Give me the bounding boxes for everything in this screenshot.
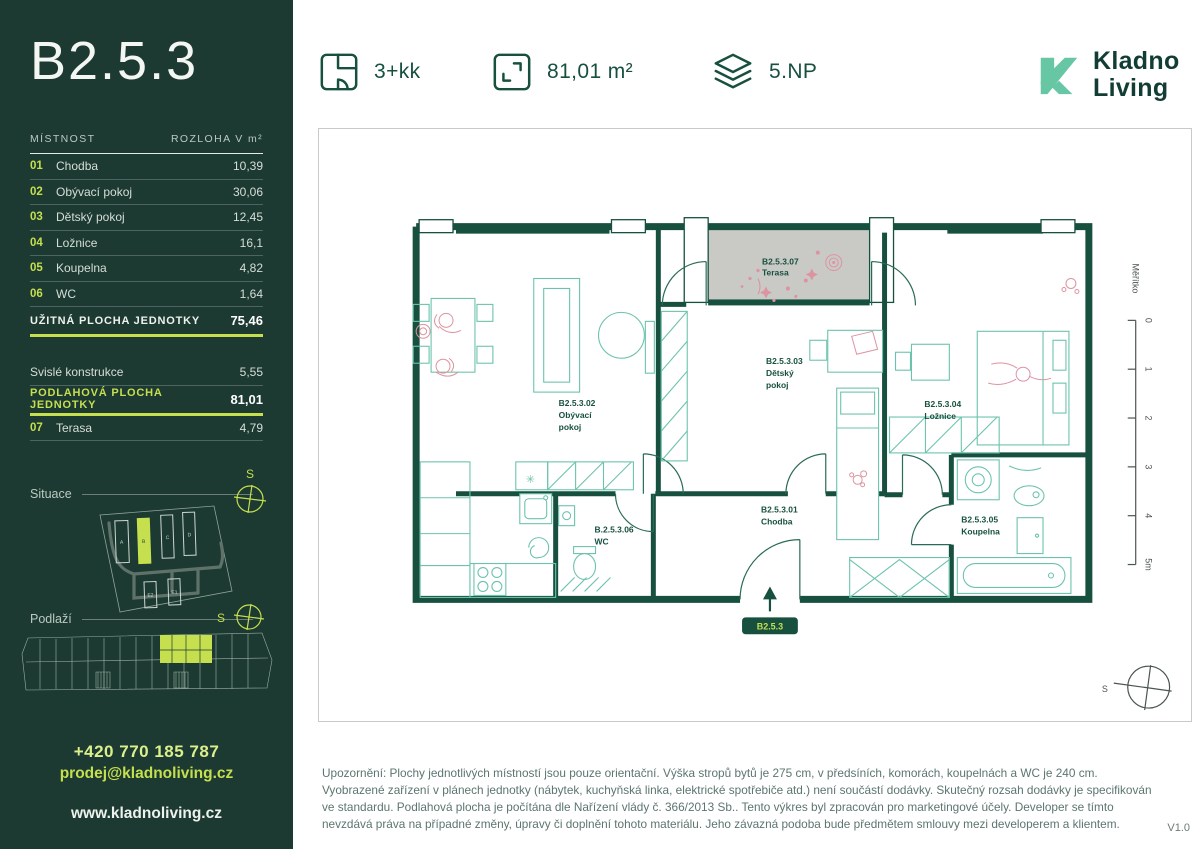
svg-text:Dětský: Dětský	[766, 368, 794, 378]
floors-icon	[711, 51, 755, 93]
wc-fixtures	[559, 506, 611, 592]
svg-text:✳: ✳	[526, 474, 535, 486]
site-plan-diagram: A B C D E2 E1	[80, 503, 260, 615]
entrance-marker: B2.5.3	[742, 586, 798, 634]
unit-title: B2.5.3	[30, 30, 198, 92]
table-row: 06 WC 1,64	[30, 282, 263, 308]
terrace-name: Terasa	[56, 421, 240, 435]
svg-text:Ložnice: Ložnice	[924, 411, 956, 421]
hallway-storage	[850, 558, 950, 598]
svg-text:WC: WC	[595, 537, 609, 547]
layout-icon	[318, 51, 360, 93]
walls-value: 5,55	[240, 365, 263, 379]
room-area: 1,64	[240, 287, 263, 301]
room-area: 30,06	[233, 185, 263, 199]
room-table: MÍSTNOST ROZLOHA V m² 01 Chodba 10,39 02…	[30, 133, 263, 441]
floor-plan-panel: ✳	[318, 128, 1192, 722]
usable-area-value: 75,46	[230, 313, 263, 328]
terrace-window	[708, 299, 869, 305]
plan-compass-icon: S	[1102, 665, 1172, 710]
usable-area-label: UŽITNÁ PLOCHA JEDNOTKY	[30, 315, 230, 327]
svg-text:4: 4	[1144, 513, 1154, 518]
room-area: 12,45	[233, 210, 263, 224]
room-area: 10,39	[233, 159, 263, 173]
room-number: 04	[30, 237, 56, 249]
svg-text:Terasa: Terasa	[762, 268, 789, 278]
floor-overview-diagram	[16, 630, 278, 698]
divider	[82, 494, 253, 495]
terrace-num: 07	[30, 422, 56, 434]
window	[456, 228, 609, 234]
table-row: 04 Ložnice 16,1	[30, 231, 263, 257]
room-name: Obývací pokoj	[56, 185, 233, 199]
flat-card-page: B2.5.3 MÍSTNOST ROZLOHA V m² 01 Chodba 1…	[0, 0, 1200, 849]
contact-block: +420 770 185 787 prodej@kladnoliving.cz …	[0, 742, 293, 823]
floor-plan-drawing: ✳	[319, 129, 1191, 721]
door-arcs	[615, 262, 951, 600]
table-row: 05 Koupelna 4,82	[30, 256, 263, 282]
kladno-living-logo-icon	[1035, 52, 1081, 98]
area-value: 81,01 m²	[547, 60, 633, 84]
room-area: 16,1	[240, 236, 263, 250]
svg-text:E1: E1	[171, 590, 178, 596]
svg-text:B.2.5.3.06: B.2.5.3.06	[595, 525, 634, 535]
floor-area-row: PODLAHOVÁ PLOCHA JEDNOTKY 81,01	[30, 386, 263, 416]
version-label: V1.0	[1167, 822, 1190, 834]
svg-text:S: S	[1102, 684, 1108, 694]
svg-text:1: 1	[1144, 367, 1154, 372]
svg-text:B2.5.3.02: B2.5.3.02	[559, 398, 596, 408]
floor-area-value: 81,01	[230, 392, 263, 407]
svg-text:D: D	[187, 532, 191, 538]
svg-text:S: S	[217, 611, 225, 625]
room-area: 4,82	[240, 261, 263, 275]
highlighted-unit	[160, 635, 212, 663]
room-number: 02	[30, 186, 56, 198]
terrace-value: 4,79	[240, 421, 263, 435]
svg-text:3: 3	[1144, 464, 1154, 469]
room-number: 03	[30, 211, 56, 223]
svg-text:pokoj: pokoj	[559, 422, 582, 432]
terrace-row: 07 Terasa 4,79	[30, 416, 263, 442]
svg-text:S: S	[246, 467, 254, 481]
svg-text:pokoj: pokoj	[766, 380, 789, 390]
svg-text:C: C	[166, 535, 170, 541]
svg-text:0: 0	[1144, 318, 1154, 323]
svg-text:5m: 5m	[1144, 558, 1154, 570]
website-link[interactable]: www.kladnoliving.cz	[0, 805, 293, 823]
main-area: 3+kk 81,01 m² 5.NP	[293, 0, 1200, 849]
col-area-header: ROZLOHA V m²	[171, 133, 263, 145]
floor-value: 5.NP	[769, 60, 817, 84]
svg-text:B2.5.3.04: B2.5.3.04	[924, 399, 961, 409]
room-number: 06	[30, 288, 56, 300]
bedroom-furniture	[890, 278, 1079, 452]
table-header: MÍSTNOST ROZLOHA V m²	[30, 133, 263, 154]
svg-text:B2.5.3: B2.5.3	[757, 621, 783, 631]
svg-text:Koupelna: Koupelna	[961, 527, 1000, 537]
email-link[interactable]: prodej@kladnoliving.cz	[0, 765, 293, 783]
disposition-value: 3+kk	[374, 60, 421, 84]
area-icon	[491, 51, 533, 93]
svg-text:B2.5.3.05: B2.5.3.05	[961, 515, 998, 525]
spec-area: 81,01 m²	[491, 50, 633, 94]
room-name: Dětský pokoj	[56, 210, 233, 224]
room-rows: 01 Chodba 10,39 02 Obývací pokoj 30,06 0…	[30, 154, 263, 307]
svg-text:Měřítko: Měřítko	[1131, 264, 1141, 294]
svg-text:B2.5.3.01: B2.5.3.01	[761, 505, 798, 515]
svg-text:Chodba: Chodba	[761, 517, 793, 527]
svg-text:B2.5.3.07: B2.5.3.07	[762, 257, 799, 267]
svg-text:E2: E2	[147, 593, 154, 599]
walls-row: Svislé konstrukce 5,55	[30, 360, 263, 386]
spec-floor: 5.NP	[711, 50, 817, 94]
room-number: 05	[30, 262, 56, 274]
svg-text:Obývací: Obývací	[559, 410, 593, 420]
svg-text:A: A	[120, 540, 124, 546]
window	[947, 228, 1043, 234]
walls-label: Svislé konstrukce	[30, 365, 240, 379]
room-number: 01	[30, 160, 56, 172]
table-row: 02 Obývací pokoj 30,06	[30, 180, 263, 206]
room-name: WC	[56, 287, 240, 301]
scale-ruler: Měřítko 0 1 2 3 4 5m	[1128, 264, 1154, 571]
disclaimer-text: Upozornění: Plochy jednotlivých místnost…	[322, 765, 1162, 833]
col-room-header: MÍSTNOST	[30, 133, 95, 145]
living-room-furniture	[413, 278, 654, 392]
north-compass-icon: S	[213, 600, 271, 634]
svg-text:2: 2	[1144, 416, 1154, 421]
room-name: Koupelna	[56, 261, 240, 275]
table-row: 03 Dětský pokoj 12,45	[30, 205, 263, 231]
table-row: 01 Chodba 10,39	[30, 154, 263, 180]
floor-area-label: PODLAHOVÁ PLOCHA JEDNOTKY	[30, 387, 230, 411]
room-name: Ložnice	[56, 236, 240, 250]
sidebar: B2.5.3 MÍSTNOST ROZLOHA V m² 01 Chodba 1…	[0, 0, 293, 849]
brand-logo-text: Kladno Living	[1093, 48, 1180, 102]
phone-link[interactable]: +420 770 185 787	[0, 742, 293, 762]
usable-area-row: UŽITNÁ PLOCHA JEDNOTKY 75,46	[30, 307, 263, 337]
room-name: Chodba	[56, 159, 233, 173]
brand-logo: Kladno Living	[1035, 48, 1180, 102]
svg-text:B2.5.3.03: B2.5.3.03	[766, 356, 803, 366]
spec-disposition: 3+kk	[318, 50, 421, 94]
